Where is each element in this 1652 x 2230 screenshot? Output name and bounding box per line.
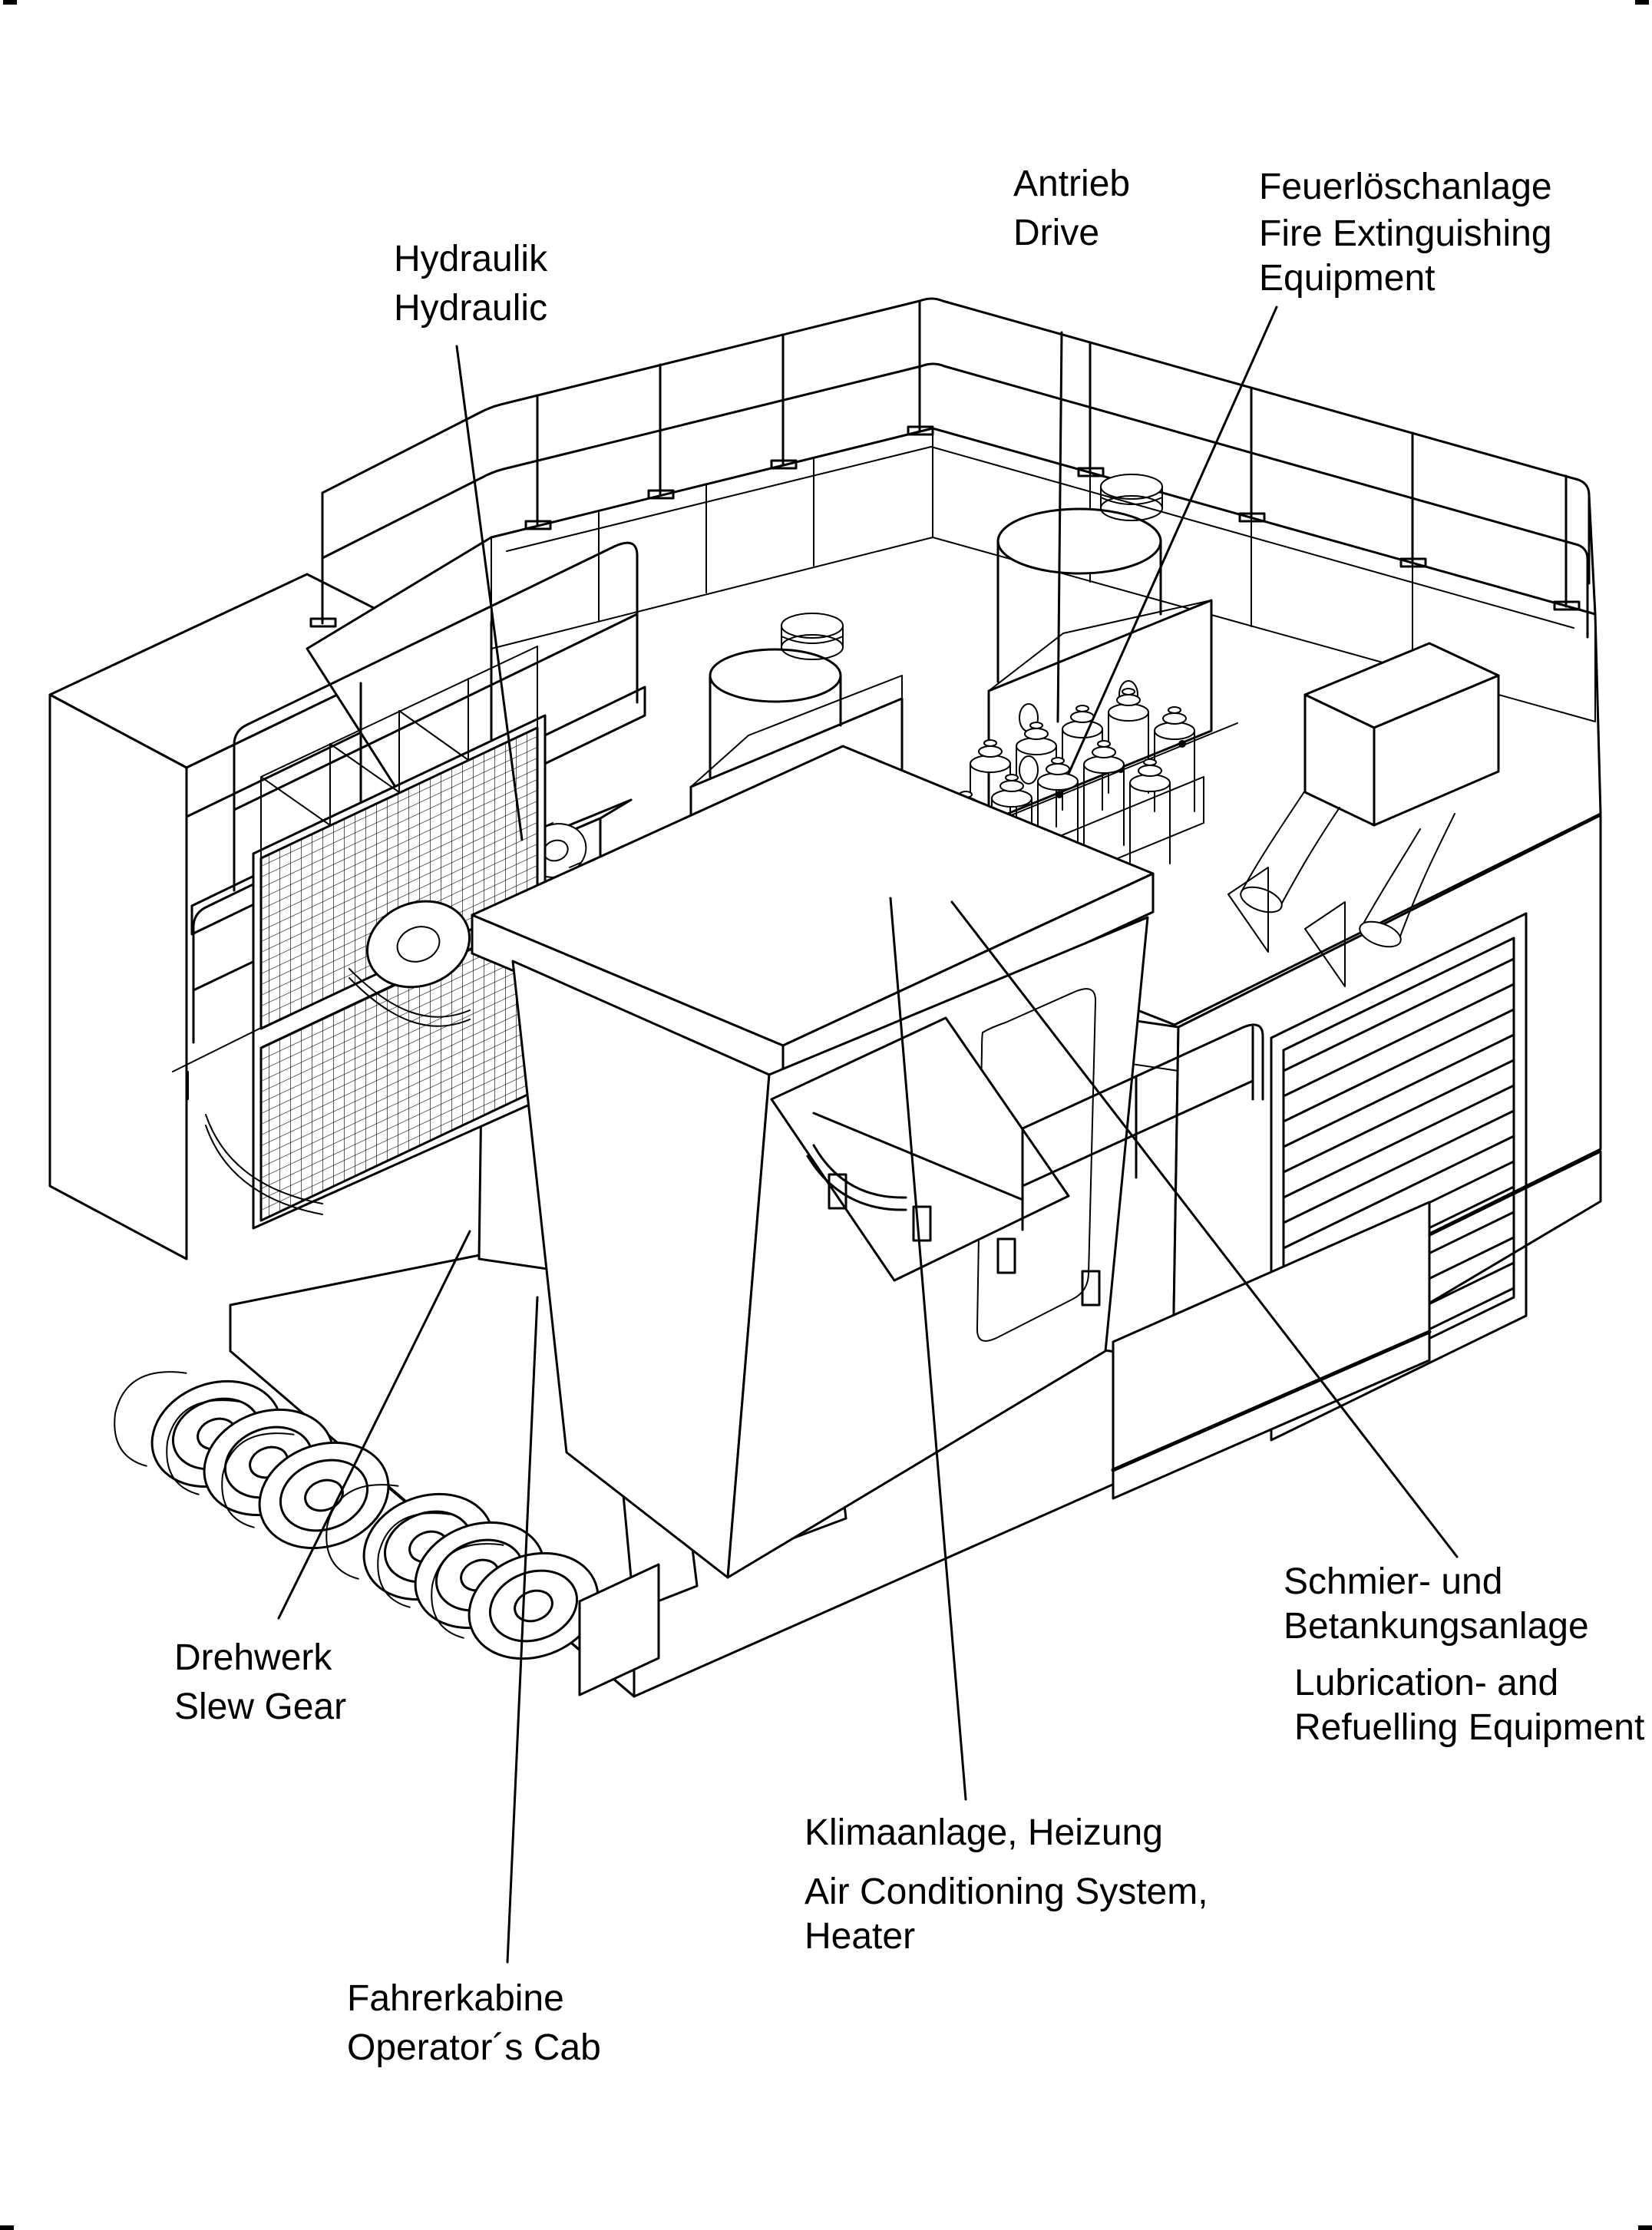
- label-fire-extinguishing-en1: Fire Extinguishing: [1259, 212, 1552, 256]
- technical-diagram-page: Hydraulik Hydraulic Antrieb Drive Feuerl…: [0, 0, 1652, 2230]
- label-air-conditioning: Klimaanlage, Heizung Air Conditioning Sy…: [805, 1809, 1208, 1959]
- label-drive-de: Antrieb: [1013, 160, 1130, 209]
- label-drive-en: Drive: [1013, 209, 1130, 258]
- label-air-conditioning-en1: Air Conditioning System,: [805, 1870, 1208, 1914]
- label-air-conditioning-de: Klimaanlage, Heizung: [805, 1809, 1208, 1858]
- label-operators-cab-en: Operator´s Cab: [347, 2024, 601, 2073]
- label-lubrication-de2: Betankungsanlage: [1284, 1604, 1644, 1649]
- label-operators-cab: Fahrerkabine Operator´s Cab: [347, 1974, 601, 2073]
- label-lubrication-en2: Refuelling Equipment: [1284, 1706, 1644, 1750]
- label-operators-cab-de: Fahrerkabine: [347, 1974, 601, 2024]
- label-fire-extinguishing-en2: Equipment: [1259, 256, 1552, 301]
- label-hydraulic: Hydraulik Hydraulic: [394, 235, 547, 333]
- label-slew-gear-en: Slew Gear: [174, 1683, 346, 1732]
- label-hydraulic-de: Hydraulik: [394, 235, 547, 284]
- label-hydraulic-en: Hydraulic: [394, 284, 547, 333]
- label-fire-extinguishing-de: Feuerlöschanlage: [1259, 163, 1552, 212]
- label-lubrication: Schmier- und Betankungsanlage Lubricatio…: [1284, 1560, 1644, 1750]
- label-lubrication-en1: Lubrication- and: [1284, 1661, 1644, 1706]
- label-slew-gear: Drehwerk Slew Gear: [174, 1634, 346, 1732]
- label-fire-extinguishing: Feuerlöschanlage Fire Extinguishing Equi…: [1259, 163, 1552, 301]
- label-slew-gear-de: Drehwerk: [174, 1634, 346, 1683]
- label-drive: Antrieb Drive: [1013, 160, 1130, 258]
- label-lubrication-de1: Schmier- und: [1284, 1560, 1644, 1604]
- label-air-conditioning-en2: Heater: [805, 1914, 1208, 1959]
